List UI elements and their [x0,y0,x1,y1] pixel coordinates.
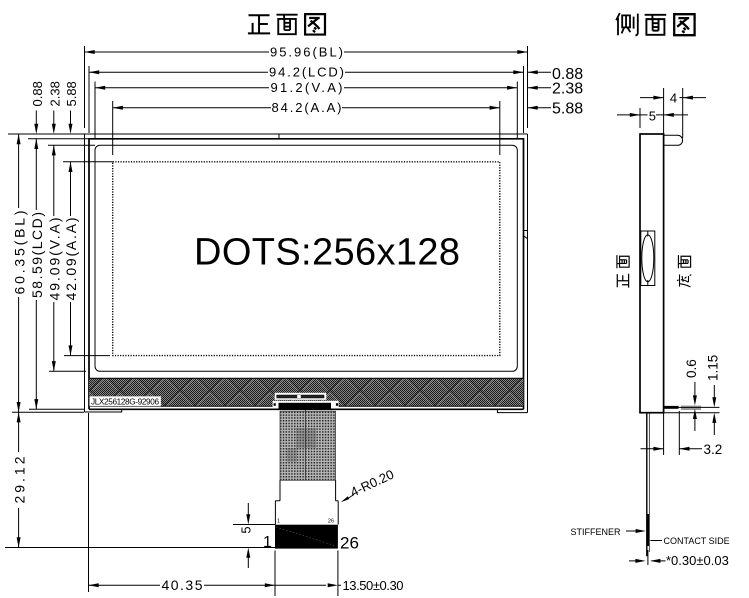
svg-text:40.35: 40.35 [162,577,203,593]
svg-text:29.12: 29.12 [12,456,28,503]
svg-text:1.15: 1.15 [706,355,721,381]
svg-text:4: 4 [670,91,677,106]
svg-text:STIFFENER: STIFFENER [571,527,622,537]
svg-text:0.6: 0.6 [684,359,699,378]
svg-text:2.38: 2.38 [48,81,63,106]
svg-text:5.88: 5.88 [552,101,583,118]
svg-text:1: 1 [263,534,272,551]
svg-text:5.88: 5.88 [64,81,79,106]
svg-text:0.88: 0.88 [30,81,45,106]
svg-text:1: 1 [277,518,280,524]
svg-text:CONTACT SIDE: CONTACT SIDE [664,536,730,546]
svg-text:DOTS:256x128: DOTS:256x128 [194,232,460,274]
svg-text:26: 26 [328,518,334,524]
svg-text:84.2(A.A): 84.2(A.A) [272,100,342,115]
svg-text:58.59(LCD): 58.59(LCD) [29,212,45,298]
svg-text:13.50±0.30: 13.50±0.30 [343,578,404,593]
svg-text:5: 5 [239,526,254,533]
svg-text:*0.30±0.03: *0.30±0.03 [666,553,729,568]
svg-text:95.96(BL): 95.96(BL) [270,45,343,60]
svg-text:42.09(A.A): 42.09(A.A) [63,218,79,301]
svg-text:26: 26 [340,534,359,553]
svg-text:5: 5 [649,109,656,124]
svg-text:60.35(BL): 60.35(BL) [12,211,28,295]
svg-text:2.38: 2.38 [552,81,583,98]
svg-text:3.2: 3.2 [704,442,723,457]
svg-text:JLX256128G-92906: JLX256128G-92906 [91,397,159,406]
svg-text:91.2(V.A): 91.2(V.A) [271,80,343,95]
svg-text:49.09(V.A): 49.09(V.A) [47,218,63,301]
